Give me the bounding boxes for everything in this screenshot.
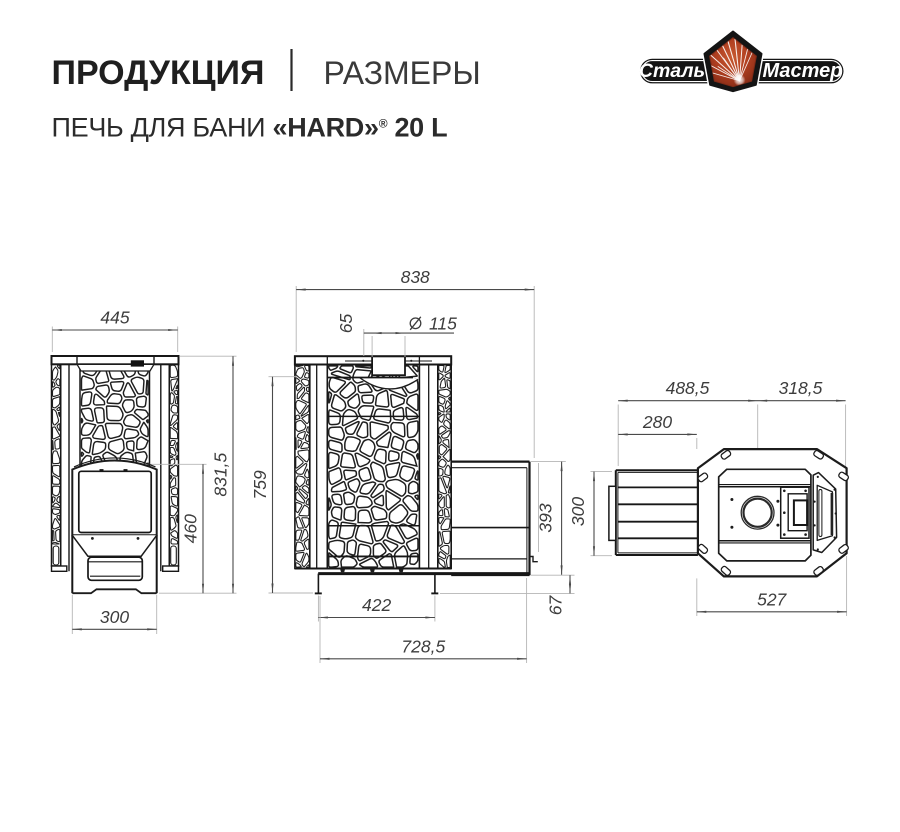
svg-text:ПЕЧЬ ДЛЯ БАНИ «HARD»® 20 L: ПЕЧЬ ДЛЯ БАНИ «HARD»® 20 L <box>52 113 448 143</box>
svg-text:488,5: 488,5 <box>666 378 710 398</box>
svg-text:831,5: 831,5 <box>211 453 231 497</box>
svg-text:759: 759 <box>250 470 270 499</box>
svg-text:115: 115 <box>429 313 457 333</box>
svg-text:728,5: 728,5 <box>401 636 445 656</box>
svg-text:460: 460 <box>181 514 201 543</box>
svg-text:ПРОДУКЦИЯ: ПРОДУКЦИЯ <box>52 54 265 92</box>
svg-text:527: 527 <box>757 589 787 609</box>
svg-text:838: 838 <box>401 267 430 287</box>
svg-text:Сталь: Сталь <box>639 60 705 82</box>
svg-text:300: 300 <box>100 607 129 627</box>
svg-text:Мастер: Мастер <box>762 60 842 82</box>
svg-text:280: 280 <box>642 412 672 432</box>
svg-text:445: 445 <box>100 308 129 328</box>
svg-text:300: 300 <box>568 497 588 526</box>
svg-text:393: 393 <box>536 503 556 532</box>
svg-text:67: 67 <box>546 595 566 616</box>
svg-text:РАЗМЕРЫ: РАЗМЕРЫ <box>324 55 481 91</box>
svg-text:318,5: 318,5 <box>779 378 823 398</box>
svg-text:65: 65 <box>336 314 356 334</box>
svg-text:422: 422 <box>362 595 391 615</box>
